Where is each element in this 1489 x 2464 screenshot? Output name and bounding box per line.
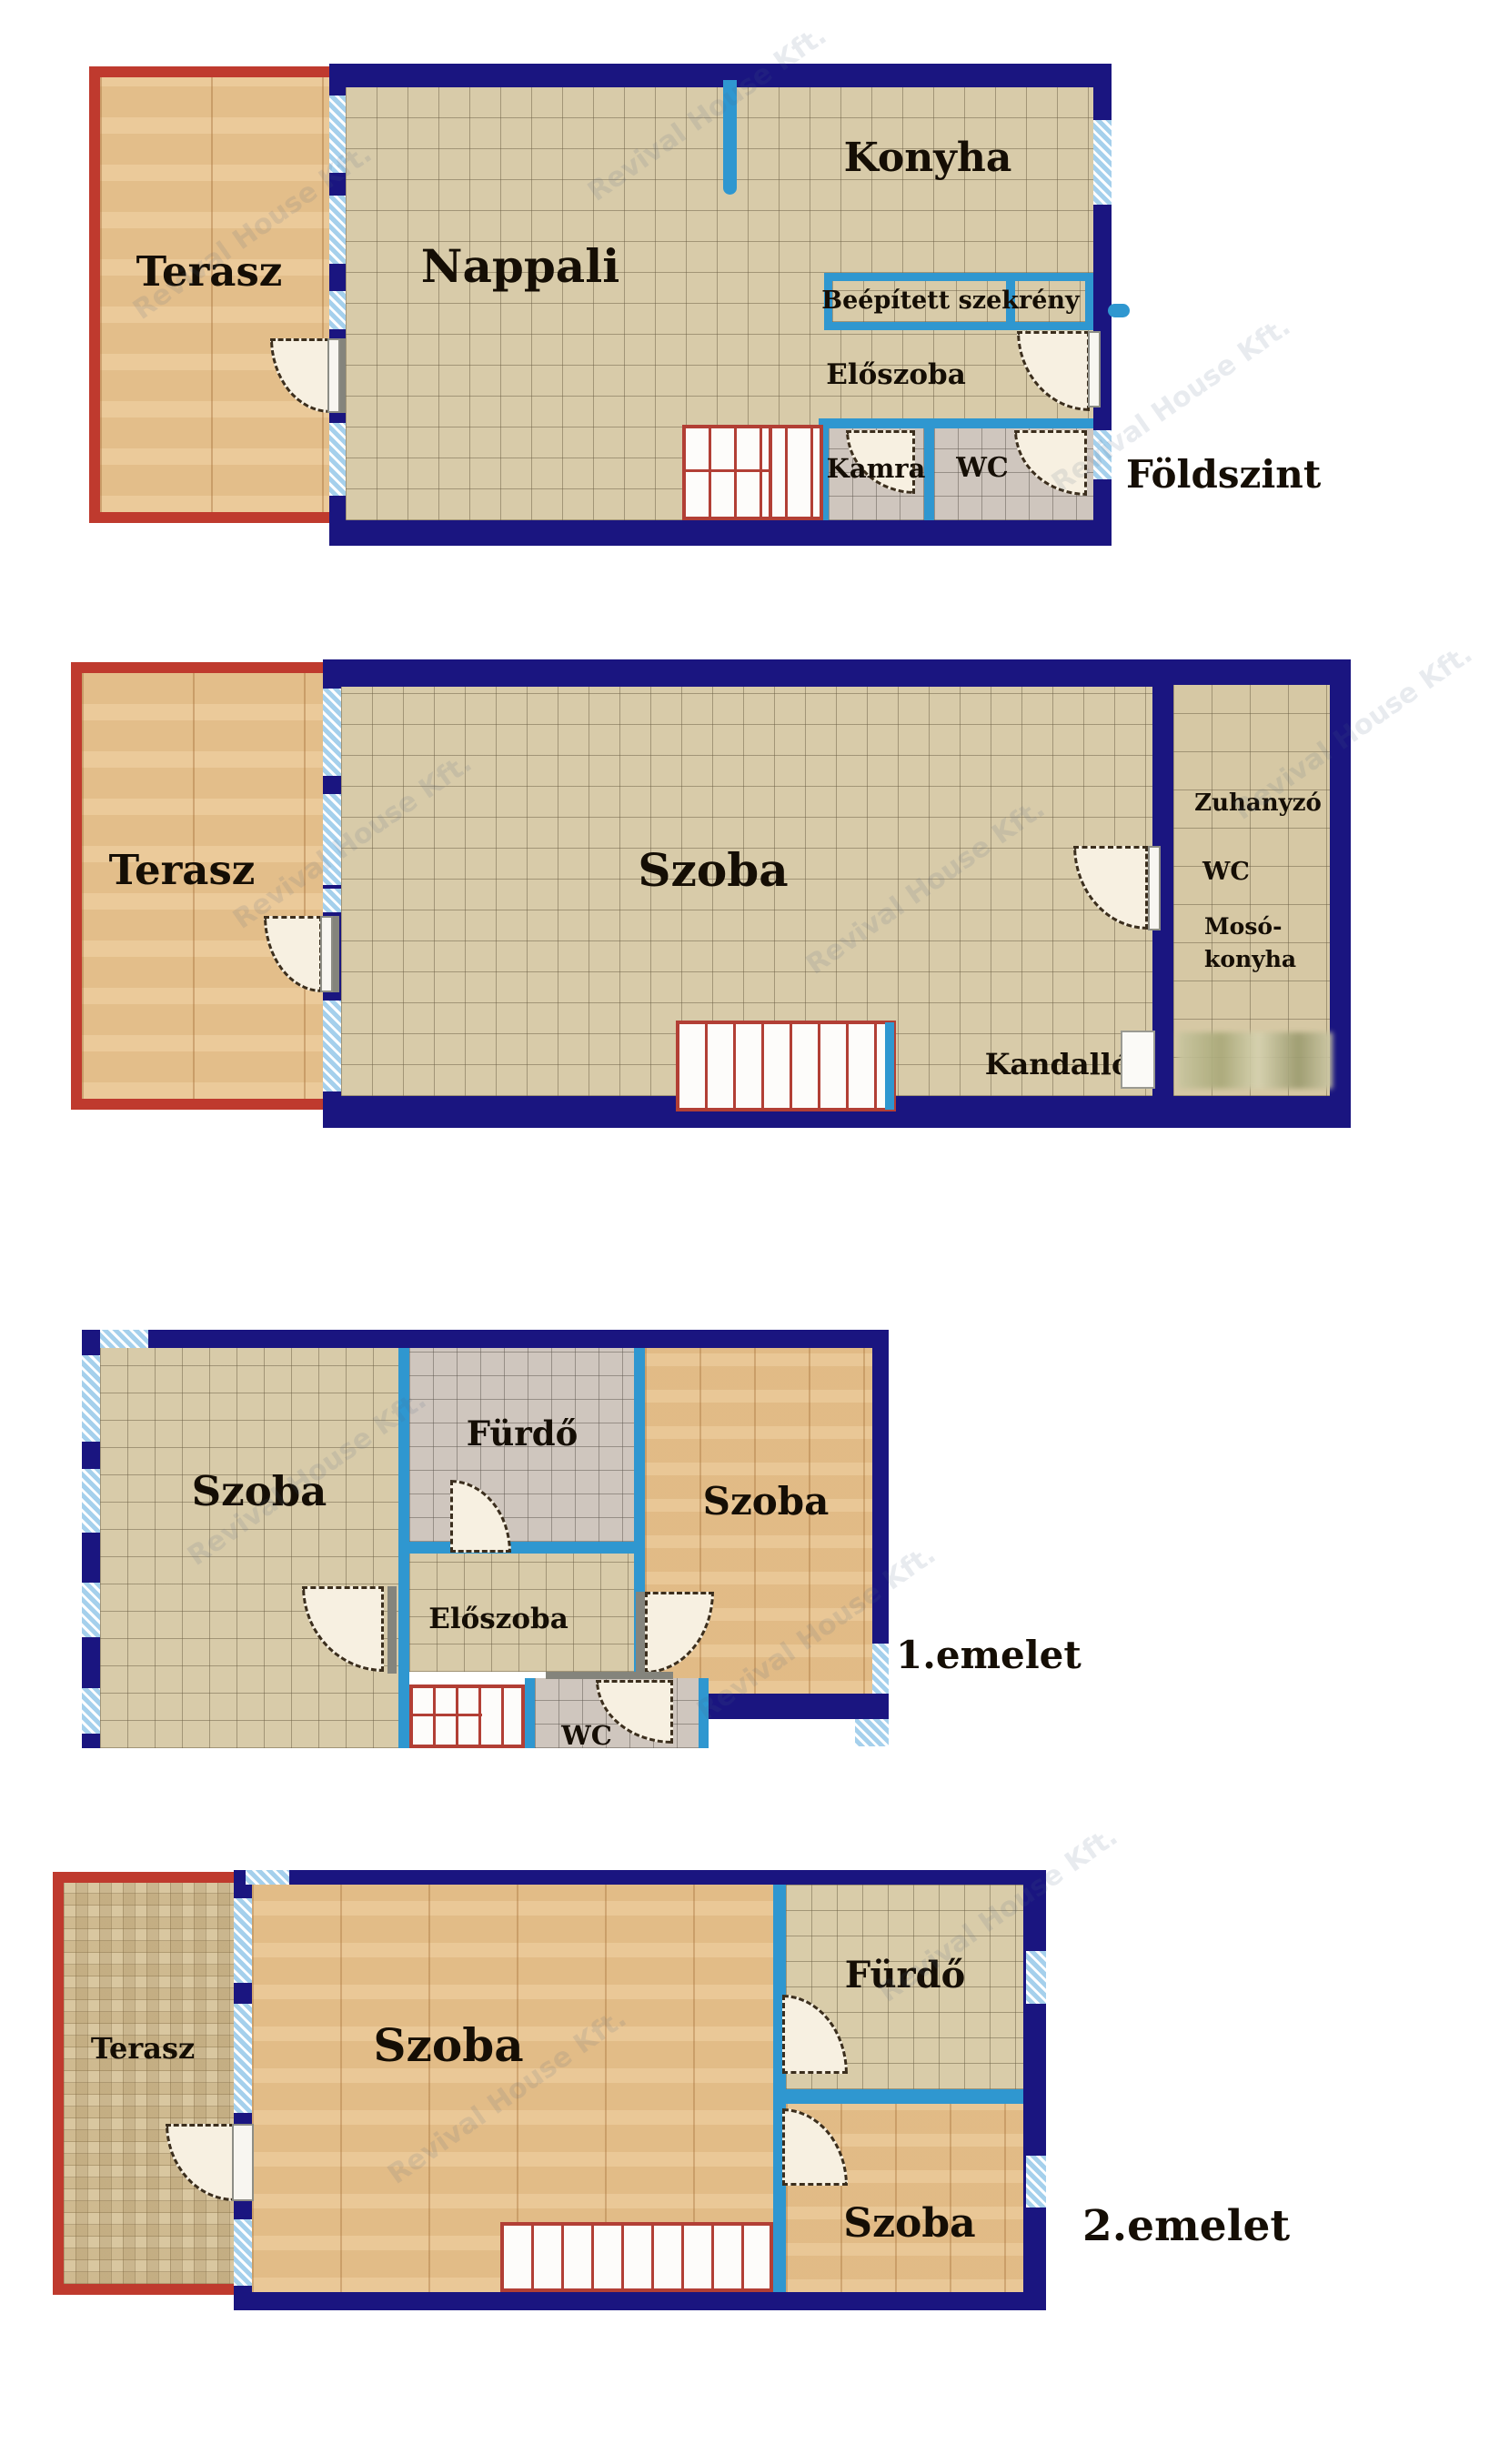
window-icon <box>96 1330 148 1348</box>
stairs-divider-line <box>769 425 772 520</box>
room-label-eloszoba: Előszoba <box>805 357 987 393</box>
stairs-edge <box>885 1022 894 1110</box>
label-beepitett-szekreny: Beépített szekrény <box>805 282 1096 320</box>
window-icon <box>234 1898 252 1983</box>
stairs <box>409 1685 525 1748</box>
door-leaf <box>320 916 333 992</box>
room-label-eloszoba: Előszoba <box>407 1601 589 1637</box>
stairs-landing-line <box>686 469 770 472</box>
szoba-left-floor <box>100 1348 398 1748</box>
fireplace <box>1121 1031 1155 1089</box>
level-label-foldszint: Földszint <box>1126 451 1399 498</box>
room-label-wc: WC <box>937 452 1028 485</box>
window-icon <box>82 1469 100 1533</box>
inner-wall <box>409 1542 634 1554</box>
room-label-furdo: Fürdő <box>431 1412 613 1455</box>
room-label-nappali: Nappali <box>384 240 657 293</box>
level-label-emelet1: 1.emelet <box>896 1632 1151 1679</box>
window-icon <box>329 423 346 496</box>
washing-machine-photo <box>1178 1032 1333 1089</box>
room-label-wc: WC <box>1202 856 1312 889</box>
window-icon <box>246 1870 289 1885</box>
floorplan-image: Terasz Nappali Konyha Beépített szekrény… <box>0 0 1489 2464</box>
room-label-terasz: Terasz <box>65 2030 220 2068</box>
door-leaf <box>327 338 340 413</box>
window-icon <box>1093 120 1112 205</box>
door-jamb <box>340 338 346 413</box>
window-icon <box>323 689 341 776</box>
window-icon <box>234 2004 252 2113</box>
inner-wall <box>773 2089 1023 2104</box>
stairs-landing-line <box>411 1714 482 1716</box>
terrace-floor <box>53 1872 235 2295</box>
window-icon <box>329 196 346 264</box>
window-icon <box>872 1644 889 1694</box>
window-icon <box>323 1001 341 1091</box>
window-icon <box>1026 2156 1046 2208</box>
door-handle-icon <box>1108 304 1130 317</box>
door-jamb <box>636 1592 645 1675</box>
inner-wall <box>819 418 1093 428</box>
room-label-szoba-right: Szoba <box>661 1477 870 1526</box>
window-icon <box>82 1583 100 1637</box>
outer-wall-top <box>89 1330 889 1348</box>
room-label-mosokonyha-line2: konyha <box>1204 944 1332 975</box>
door-leaf <box>1088 331 1101 407</box>
window-icon <box>234 2219 252 2286</box>
room-label-kamra: Kamra <box>812 452 940 485</box>
stairs <box>676 1021 896 1111</box>
room-label-wc: WC <box>532 1719 641 1752</box>
room-label-mosokonyha-line1: Mosó- <box>1204 911 1332 942</box>
stairs <box>500 2222 773 2292</box>
door-jamb <box>333 916 339 992</box>
door-lintel <box>546 1672 673 1679</box>
level-label-emelet2: 2.emelet <box>1082 2201 1355 2252</box>
window-icon <box>855 1719 889 1746</box>
door-jamb <box>387 1586 397 1674</box>
door-leaf <box>232 2124 254 2201</box>
stairs <box>682 425 823 520</box>
room-label-konyha: Konyha <box>791 135 1064 182</box>
inner-wall <box>773 1885 786 2292</box>
outer-wall-right <box>872 1330 889 1694</box>
room-label-szoba: Szoba <box>577 844 850 897</box>
door-leaf <box>1148 846 1161 930</box>
window-icon <box>323 889 341 912</box>
room-label-szoba-also: Szoba <box>814 2199 1005 2248</box>
window-icon <box>329 291 346 329</box>
window-icon <box>82 1688 100 1734</box>
window-icon <box>82 1355 100 1442</box>
window-icon <box>1026 1951 1046 2004</box>
